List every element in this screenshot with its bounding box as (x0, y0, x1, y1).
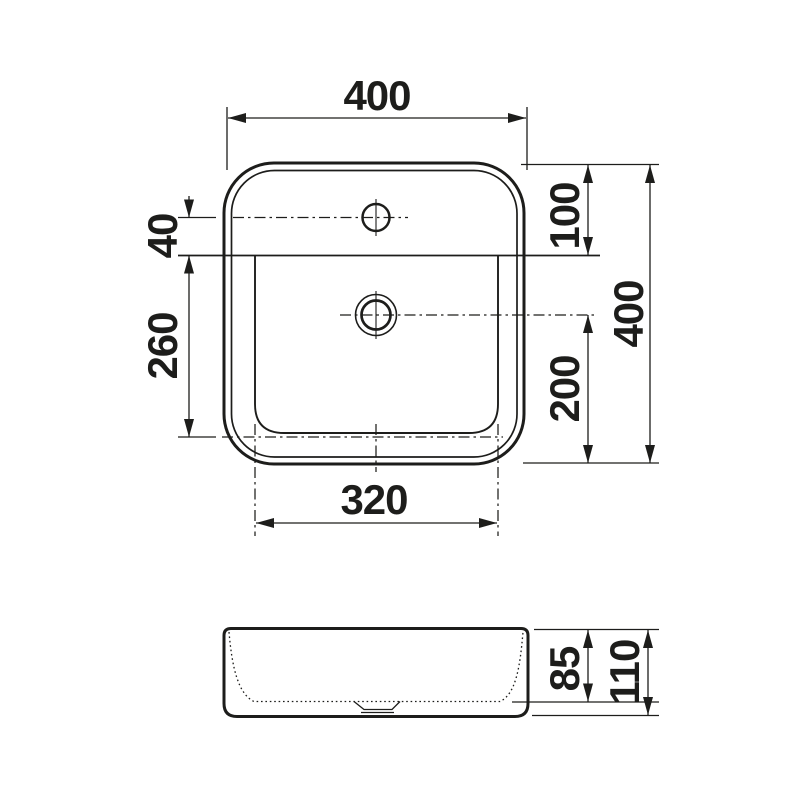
basin-profile-outline (224, 629, 528, 717)
arrowhead-right (508, 113, 526, 123)
dim-rear-edge-to-bowl: 100 (521, 165, 659, 256)
dim-label: 110 (601, 640, 648, 705)
bowl-inner-profile-hidden (229, 632, 523, 702)
side-view-dimensions: 85 110 (512, 630, 659, 716)
arrowhead-up (583, 165, 593, 183)
arrowhead-down (583, 445, 593, 463)
dim-label: 200 (541, 355, 588, 422)
basin-rim-inner-line (232, 171, 518, 458)
dim-label: 40 (139, 214, 186, 259)
arrowhead-left (228, 113, 246, 123)
arrowhead-down (184, 419, 194, 437)
dim-overall-width: 400 (227, 72, 527, 170)
dim-drain-center-to-front: 200 (541, 315, 593, 463)
drain-recess-profile (354, 702, 400, 713)
basin-outer-outline (224, 163, 524, 464)
dim-inner-depth: 85 (541, 630, 593, 702)
top-view-dimensions: 400 100 400 200 (139, 72, 659, 536)
arrowhead-up (583, 315, 593, 333)
technical-drawing: 400 100 400 200 (0, 0, 800, 800)
dim-label: 260 (139, 312, 186, 379)
arrowhead-down (645, 445, 655, 463)
arrowhead-left (256, 518, 274, 528)
dim-tap-center-to-bowl: 40 (139, 196, 216, 258)
drawing-canvas: 400 100 400 200 (0, 0, 800, 800)
dim-bowl-length: 260 (139, 256, 216, 438)
dim-label: 100 (541, 182, 588, 249)
dim-label: 400 (605, 280, 652, 347)
dim-label: 85 (541, 646, 588, 691)
dim-total-height: 110 (601, 630, 653, 715)
arrowhead-up (645, 165, 655, 183)
side-view (224, 629, 528, 717)
top-view (178, 163, 600, 472)
arrowhead-right (479, 518, 497, 528)
bowl-opening-outline (255, 256, 498, 433)
dim-label: 400 (343, 72, 410, 119)
arrowhead-up (583, 630, 593, 648)
dim-label: 320 (340, 476, 407, 523)
